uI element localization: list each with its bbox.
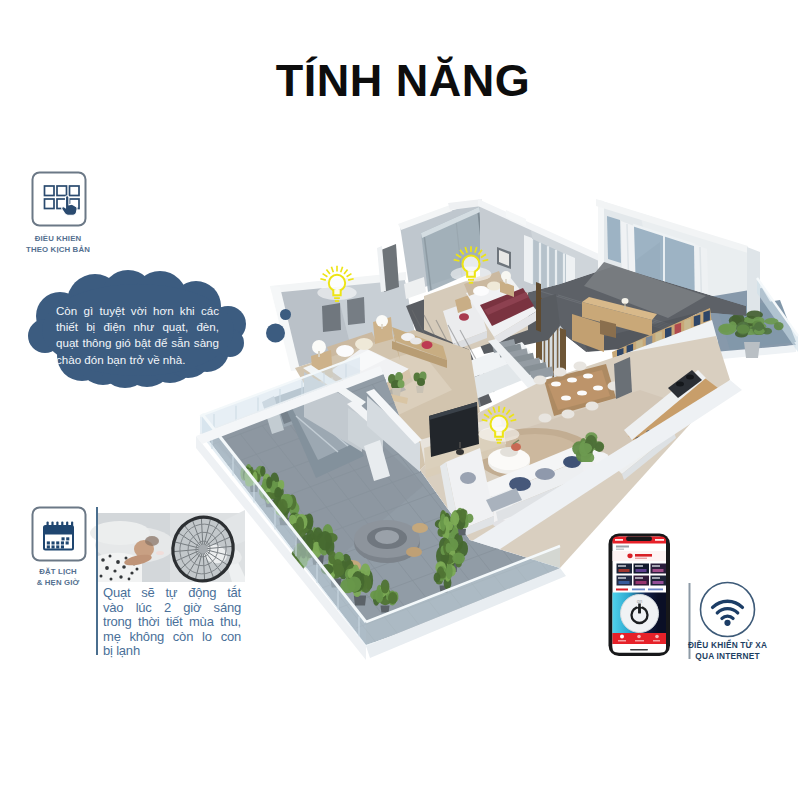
svg-text:on: on	[637, 598, 643, 604]
